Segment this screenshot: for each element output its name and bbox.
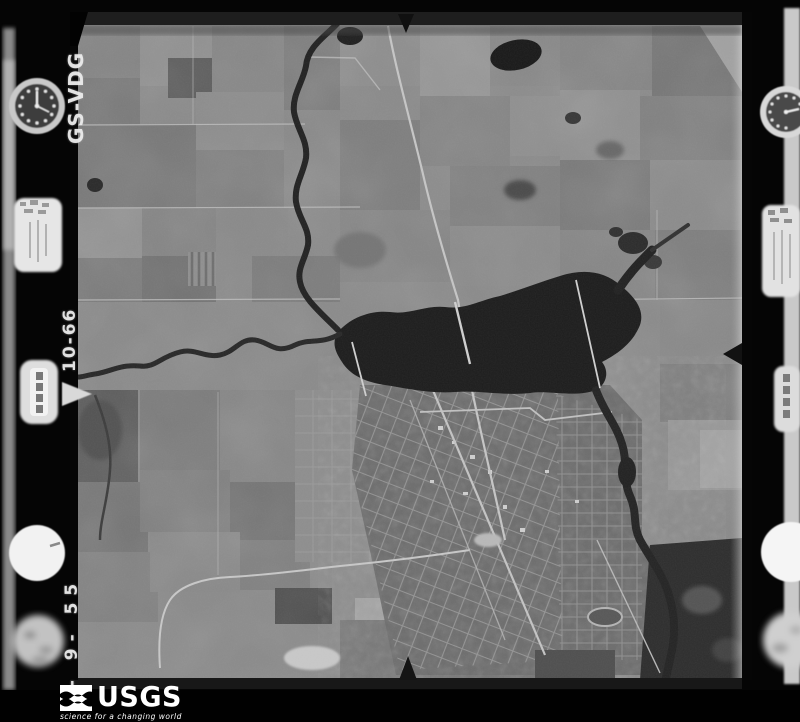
- blurred-clock-left: [12, 615, 64, 667]
- aerial-photograph: [78, 18, 744, 680]
- data-plate-right: [762, 205, 800, 297]
- aerial-photo-artwork: [0, 0, 800, 722]
- film-annotation-project-code: GS-VDG: [64, 52, 88, 144]
- frame-counter-right: [774, 366, 800, 432]
- frame-counter-left: [20, 360, 58, 424]
- usgs-logo: USGS science for a changing world: [60, 685, 200, 721]
- usgs-wave-icon: [60, 685, 92, 711]
- level-bubble-left: [9, 525, 65, 581]
- film-annotation-roll-frame: 10-66: [60, 308, 80, 372]
- usgs-wordmark: USGS: [97, 686, 182, 710]
- usgs-tagline: science for a changing world: [60, 712, 200, 721]
- altimeter-dial-left: [9, 78, 65, 134]
- usgs-aerial-photo-scan: GS-VDG 10-66 4- 9- 55 USGS science for a…: [0, 0, 800, 722]
- data-plate-left: [14, 198, 62, 272]
